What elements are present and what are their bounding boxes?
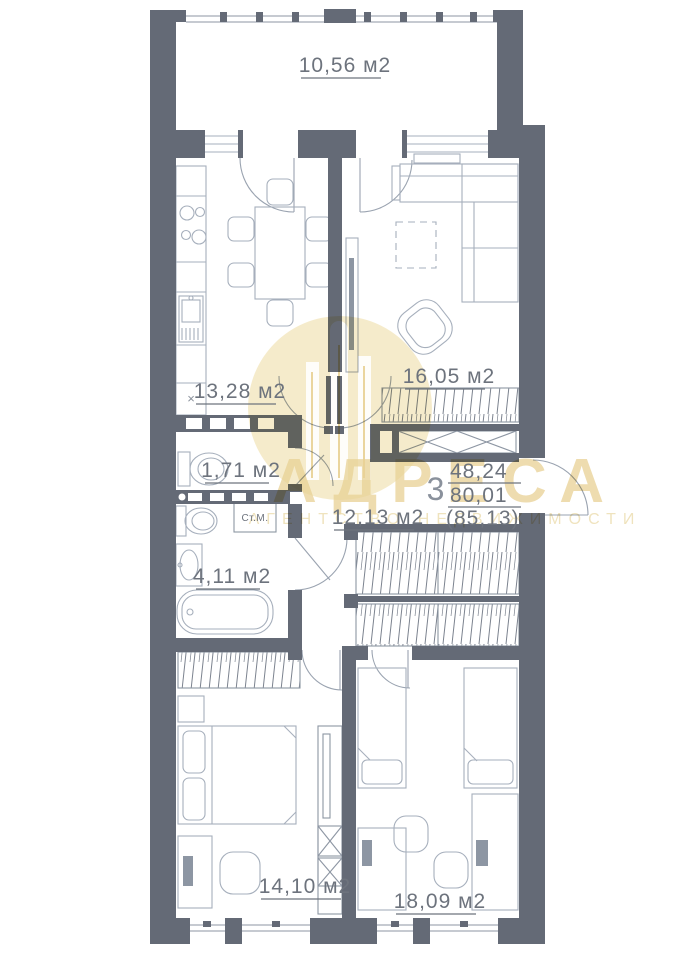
- living-window: [404, 136, 488, 152]
- toilet-2: [176, 506, 217, 536]
- desk-bedroom1: [178, 836, 212, 908]
- bedroom1-area-label: 14,10 м2: [259, 875, 352, 898]
- watermark-subtitle: АГЕНТСТВО НЕДВИЖИМОСТИ: [249, 511, 642, 528]
- chair-bedroom1: [220, 852, 260, 894]
- double-bed: [178, 726, 296, 824]
- chair: [228, 217, 254, 241]
- stove: [180, 206, 206, 244]
- fridge-mark: ×: [187, 391, 195, 406]
- chair-bedroom2-a: [394, 816, 428, 852]
- floor-plan-svg: АДРЕСА АГЕНТСТВО НЕДВИЖИМОСТИ 10,56 м2 1…: [0, 0, 679, 960]
- kitchen-area-label: 13,28 м2: [194, 380, 287, 403]
- bathroom-bottom-wall: [176, 638, 302, 652]
- bathtub: [177, 590, 273, 634]
- hallway-wardrobes: [356, 532, 519, 646]
- chair-bedroom2-b: [434, 852, 468, 888]
- kitchen-sink: [179, 296, 203, 342]
- kitchen-counter: [176, 166, 206, 415]
- coffee-table: [396, 222, 436, 268]
- single-bed-right: [464, 668, 517, 788]
- chair: [267, 179, 293, 205]
- living-area-value: 48,24: [450, 460, 508, 483]
- bedroom1-wardrobe: [178, 652, 300, 688]
- kitchen-window: [205, 136, 240, 152]
- chair: [228, 263, 254, 287]
- balcony-center-post: [324, 9, 356, 23]
- floor-plan-image: АДРЕСА АГЕНТСТВО НЕДВИЖИМОСТИ 10,56 м2 1…: [0, 0, 679, 960]
- balcony-area-label: 10,56 м2: [299, 54, 392, 77]
- nightstand: [178, 696, 204, 722]
- living-area-label: 16,05 м2: [403, 365, 496, 388]
- sofa: [392, 154, 518, 302]
- balcony-right-wall: [497, 14, 523, 134]
- balcony-door-living: [360, 158, 412, 212]
- total-area-value: 80,01: [450, 484, 508, 507]
- hallway-area-label: 12,13 м2: [332, 506, 425, 529]
- bedroom2-area-label: 18,09 м2: [394, 890, 487, 913]
- right-wall-lower: [519, 513, 545, 944]
- right-wall-upper: [519, 125, 545, 458]
- rooms-count: 3: [427, 471, 446, 507]
- bathroom-area-label: 4,11 м2: [193, 565, 271, 588]
- washing-machine-label: Ст.М.: [241, 513, 268, 524]
- chair: [267, 300, 293, 326]
- wc-area-label: 1,71 м2: [201, 459, 281, 482]
- dining-table: [228, 179, 332, 326]
- full-area-value: (85,13): [446, 507, 520, 530]
